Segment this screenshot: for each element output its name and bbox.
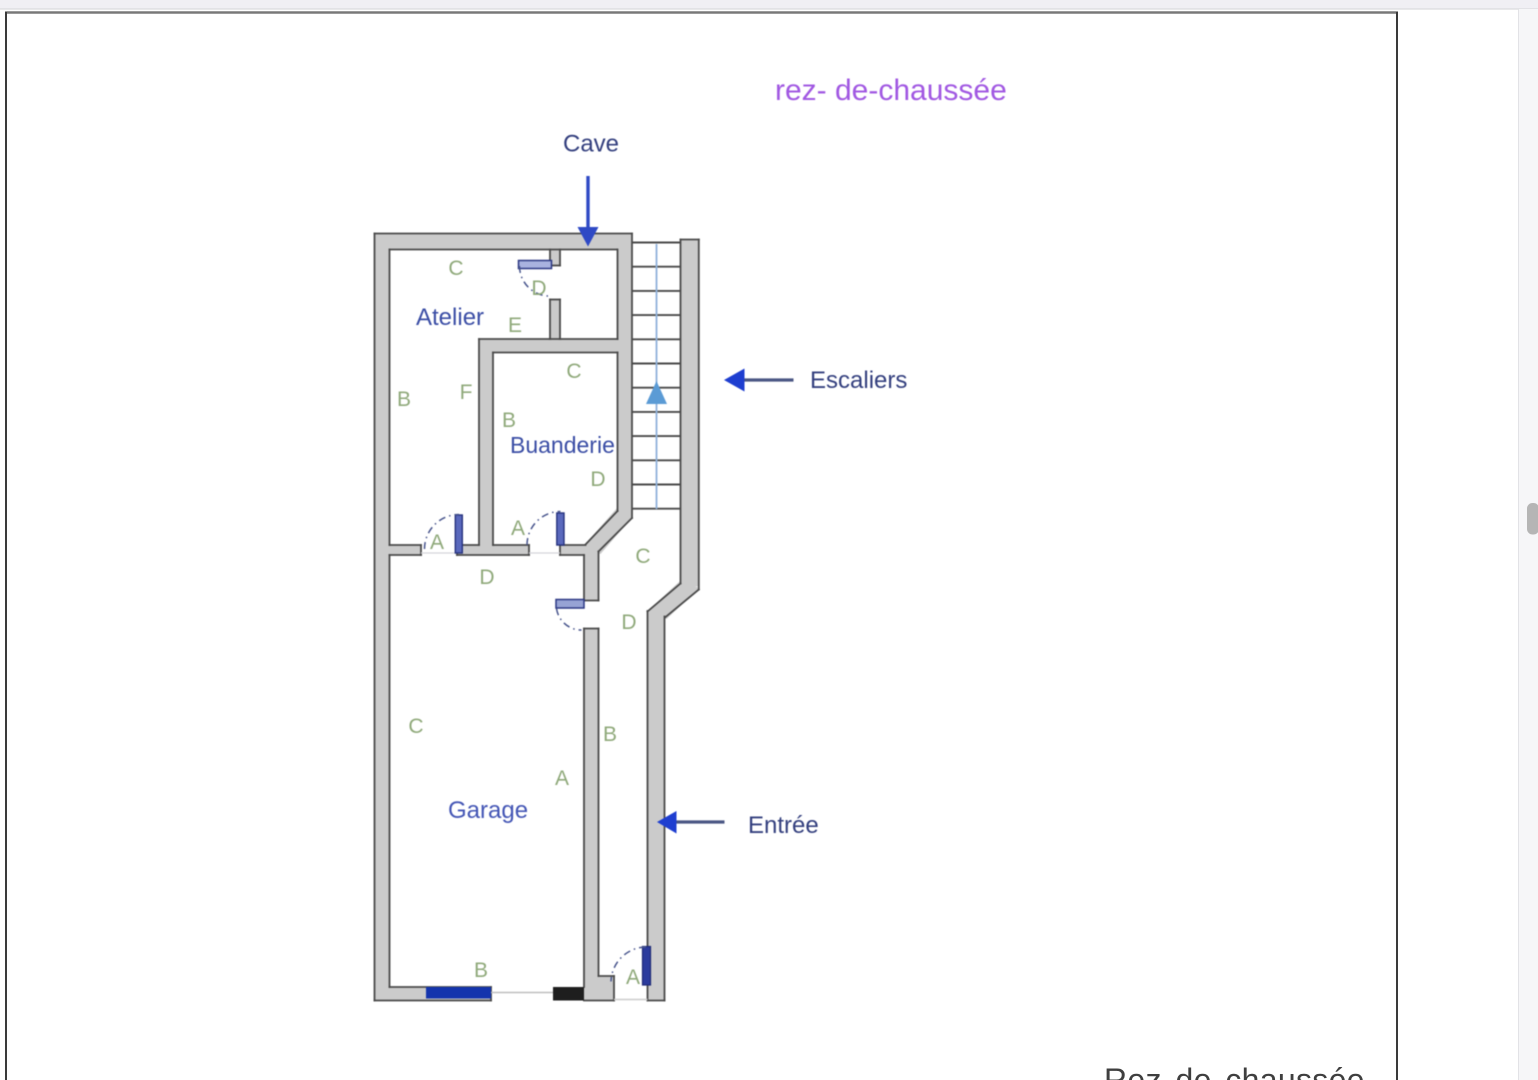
svg-text:C: C — [566, 360, 581, 383]
svg-text:E: E — [508, 314, 522, 337]
svg-text:Entrée: Entrée — [748, 812, 819, 839]
svg-text:B: B — [603, 723, 617, 746]
svg-text:Cave: Cave — [563, 131, 619, 158]
svg-text:rez- de-chaussée: rez- de-chaussée — [775, 74, 1007, 107]
svg-text:Atelier: Atelier — [416, 304, 484, 331]
svg-text:C: C — [448, 257, 463, 280]
svg-text:B: B — [397, 388, 411, 411]
svg-text:D: D — [479, 566, 494, 589]
svg-text:B: B — [502, 409, 516, 432]
svg-text:D: D — [531, 277, 546, 300]
svg-text:C: C — [408, 715, 423, 738]
svg-text:Rez de chaussée: Rez de chaussée — [1104, 1062, 1365, 1080]
svg-text:A: A — [430, 531, 444, 554]
svg-text:A: A — [511, 517, 525, 540]
svg-text:Buanderie: Buanderie — [510, 432, 615, 458]
svg-text:D: D — [621, 611, 636, 634]
svg-text:A: A — [555, 767, 569, 790]
svg-text:F: F — [460, 381, 473, 404]
svg-text:B: B — [474, 959, 488, 982]
svg-text:Escaliers: Escaliers — [810, 367, 907, 394]
svg-text:Garage: Garage — [448, 797, 528, 824]
svg-text:C: C — [635, 545, 650, 568]
svg-text:A: A — [626, 966, 640, 989]
svg-text:D: D — [590, 468, 605, 491]
